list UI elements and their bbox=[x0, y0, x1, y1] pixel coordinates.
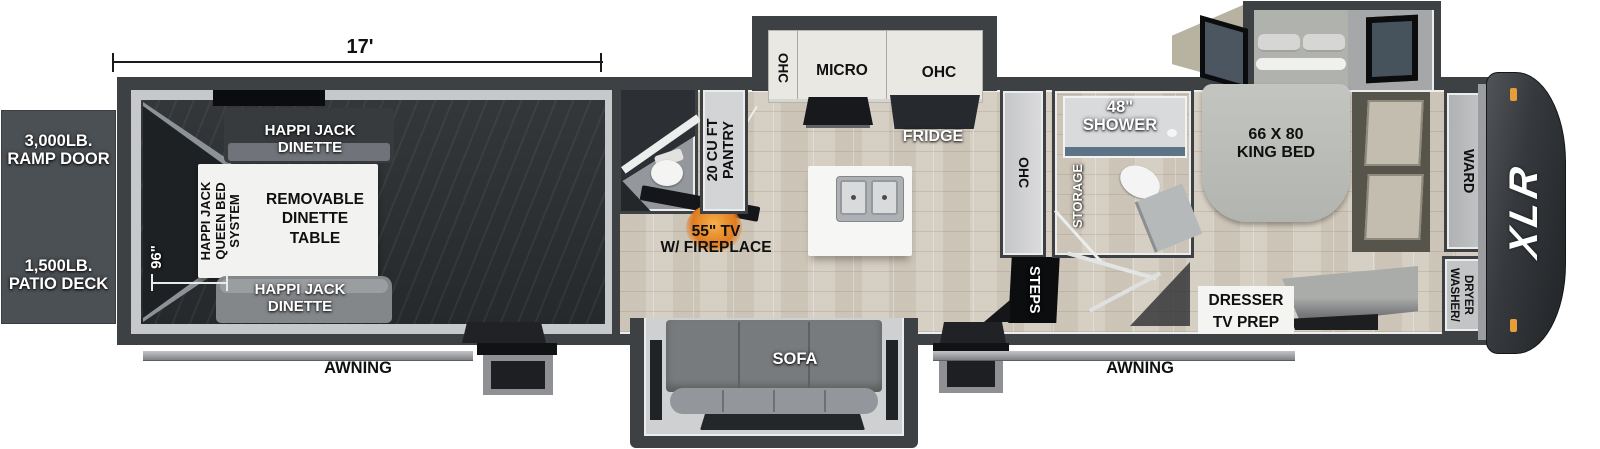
sofa-seat-seam-1 bbox=[722, 390, 724, 412]
bed-pillow-left bbox=[1258, 34, 1300, 52]
kitchen-counter-divider-2 bbox=[886, 31, 887, 99]
range-hood bbox=[803, 97, 873, 125]
kitchen-micro-label: MICRO bbox=[806, 62, 878, 79]
dimension-tick-right bbox=[600, 53, 602, 72]
bed-sheet-fold bbox=[1256, 58, 1346, 70]
awning-left-label: AWNING bbox=[298, 359, 418, 377]
kitchen-counter-divider-1 bbox=[797, 31, 798, 99]
pantry-label: 20 CU FT PANTRY bbox=[705, 89, 743, 211]
dresser-label: DRESSER TV PREP bbox=[1198, 290, 1294, 333]
ramp-door-label: 3,000LB. RAMP DOOR bbox=[4, 132, 113, 169]
garage-dinette-bottom-label: HAPPI JACK DINETTE bbox=[210, 282, 390, 316]
kitchen-ohc-right-label: OHC bbox=[908, 64, 970, 81]
main-doorway bbox=[940, 322, 1006, 343]
closet-panel-top bbox=[1364, 100, 1423, 166]
ohc-tall-label: OHC bbox=[1000, 88, 1046, 258]
dimension-line-17ft bbox=[113, 61, 603, 63]
tv-fireplace-label: 55" TV W/ FIREPLACE bbox=[648, 224, 784, 257]
sink-drain-right bbox=[882, 195, 887, 200]
entry-steps-left-threshold bbox=[477, 343, 557, 355]
kitchen-ohc-left-label: OHC bbox=[770, 44, 796, 92]
fridge-label: FRIDGE bbox=[890, 128, 976, 146]
toilet-bowl bbox=[651, 160, 683, 186]
queen-bed-system-label: HAPPI JACK QUEEN BED SYSTEM bbox=[199, 163, 253, 279]
awning-right-label: AWNING bbox=[1080, 359, 1200, 377]
fridge bbox=[890, 95, 980, 129]
garage-dinette-top-label: HAPPI JACK DINETTE bbox=[230, 123, 390, 157]
garage-roof-vent bbox=[213, 90, 325, 106]
garage-width-dim-line bbox=[152, 282, 228, 284]
sofa-back-seam-1 bbox=[738, 322, 740, 390]
marker-light-bottom bbox=[1510, 319, 1517, 332]
entry-steps-left-tread bbox=[491, 361, 545, 389]
marker-light-top bbox=[1510, 88, 1517, 101]
garage-width-dim-label: 96" bbox=[149, 233, 179, 281]
sofa-slide-bottom-window bbox=[700, 414, 865, 430]
storage-label: STORAGE bbox=[1071, 153, 1097, 239]
sofa-slide-window-right bbox=[886, 340, 898, 420]
floorplan-canvas: 17' 3,000LB. RAMP DOOR 1,500LB. PATIO DE… bbox=[0, 0, 1600, 449]
steps-label: STEPS bbox=[1010, 257, 1058, 323]
shower-label: 48" SHOWER bbox=[1062, 98, 1178, 135]
king-bed-label: 66 X 80 KING BED bbox=[1212, 126, 1340, 162]
sofa-slide-window-left bbox=[650, 340, 662, 420]
bedroom-window-right bbox=[1366, 15, 1418, 84]
sofa-label: SOFA bbox=[745, 350, 845, 368]
dimension-tick-left bbox=[112, 53, 114, 72]
entry-steps-right-tread bbox=[947, 361, 995, 387]
closet-panel-bottom bbox=[1364, 174, 1423, 240]
garage-doorway bbox=[462, 322, 546, 343]
sofa-seat-seam-2 bbox=[773, 390, 775, 412]
sink-drain-left bbox=[851, 195, 856, 200]
range-hood-edge bbox=[806, 125, 870, 128]
removable-table-label: REMOVABLE DINETTE TABLE bbox=[252, 190, 378, 248]
king-bed-upper bbox=[1254, 10, 1348, 94]
brand-logo: XLR bbox=[1502, 131, 1552, 292]
dimension-length-label: 17' bbox=[310, 36, 410, 58]
garage-width-dim-tick-right bbox=[226, 274, 228, 291]
sofa-seat-seam-3 bbox=[824, 390, 826, 412]
patio-deck-label: 1,500LB. PATIO DECK bbox=[4, 257, 113, 294]
bed-pillow-right bbox=[1303, 34, 1345, 52]
